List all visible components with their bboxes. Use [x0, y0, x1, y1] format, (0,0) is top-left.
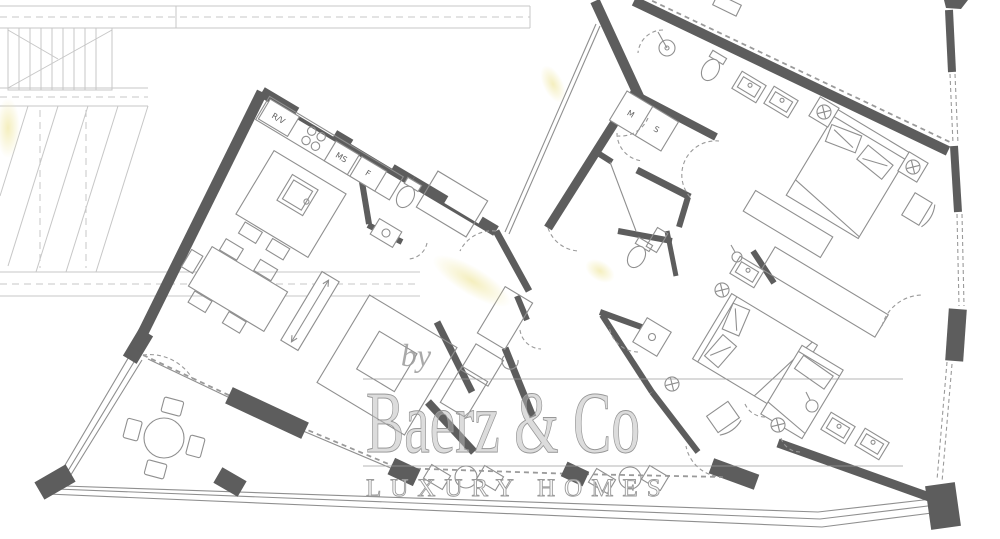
- sink-symbol: [764, 86, 798, 118]
- watermark-brand: Baerz & Co: [366, 375, 640, 472]
- highlight-spot: [581, 254, 619, 288]
- neighbor-structure: [0, 6, 530, 296]
- watermark-tagline: LUXURY HOMES: [366, 475, 670, 502]
- sideboard: [281, 272, 339, 351]
- sink-symbol: [732, 71, 766, 103]
- terrace-table: [123, 397, 205, 479]
- terrace-chair: [161, 397, 184, 417]
- vanity-fragment: [713, 0, 742, 16]
- kitchen-island: [228, 151, 346, 271]
- highlight-spot: [426, 246, 518, 316]
- sink-symbol: [855, 428, 889, 460]
- lamp-symbol: [662, 374, 681, 393]
- watermark-by: by: [401, 337, 432, 373]
- terrace-chair: [144, 460, 167, 480]
- lamp-symbol: [712, 280, 731, 299]
- window-glazing: [937, 74, 964, 482]
- guest-wc: [370, 177, 421, 247]
- armchair: [707, 401, 743, 437]
- floor-plan-image: R/V MS F: [0, 0, 1000, 539]
- toilet-symbol: [698, 50, 727, 84]
- armchair: [902, 193, 938, 229]
- highlight-spot: [0, 98, 20, 158]
- master-bedroom: [786, 97, 937, 239]
- terrace-chair: [186, 435, 206, 458]
- floorplan-svg: R/V MS F: [0, 0, 1000, 539]
- sink-symbol: [370, 219, 402, 248]
- highlight-spot: [535, 62, 571, 107]
- wall-fragment: [944, 0, 968, 9]
- terrace-chair: [123, 418, 143, 441]
- sink-symbol: [821, 412, 855, 444]
